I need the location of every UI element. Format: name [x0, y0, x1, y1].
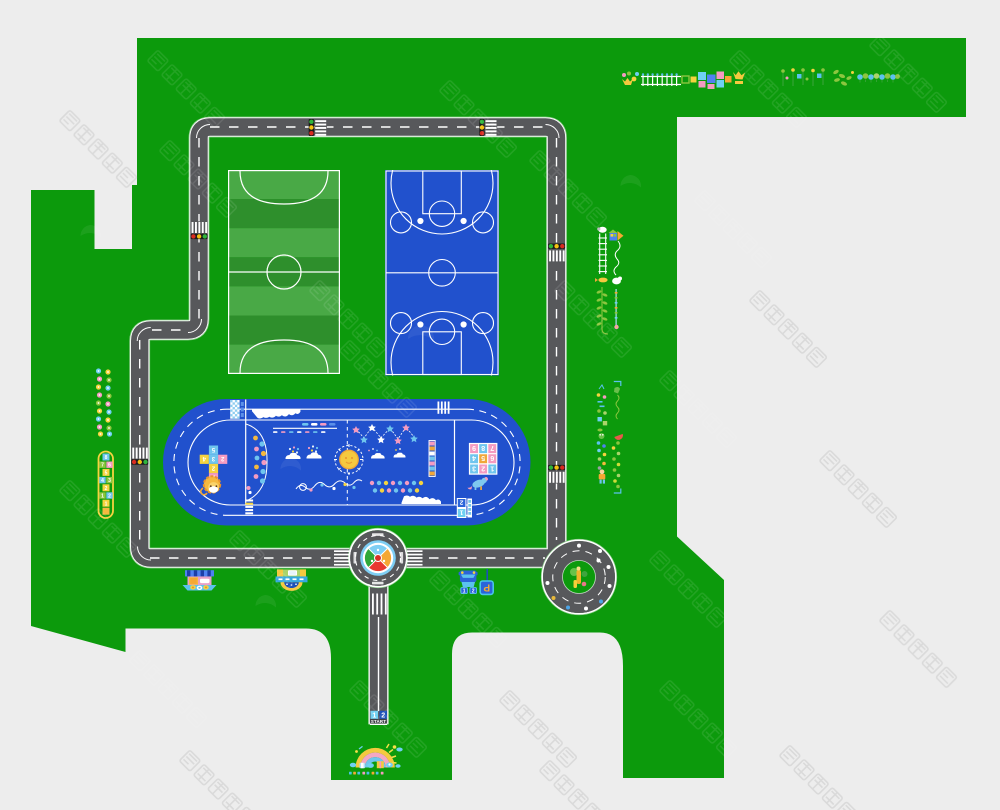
svg-text:7: 7 — [101, 463, 104, 469]
svg-text:1: 1 — [105, 502, 108, 508]
svg-text:4: 4 — [472, 454, 476, 461]
svg-text:7: 7 — [490, 444, 494, 451]
svg-text:1: 1 — [490, 464, 494, 471]
svg-text:3: 3 — [108, 478, 111, 484]
svg-text:9: 9 — [472, 444, 476, 451]
svg-text:8: 8 — [481, 444, 485, 451]
svg-text:2: 2 — [105, 486, 108, 492]
svg-text:4: 4 — [101, 478, 104, 484]
svg-text:2: 2 — [481, 464, 485, 471]
svg-text:2: 2 — [459, 498, 463, 505]
svg-text:1: 1 — [459, 508, 463, 515]
svg-text:2: 2 — [472, 589, 475, 595]
svg-text:6: 6 — [108, 463, 111, 469]
svg-text:1: 1 — [101, 494, 104, 500]
svg-text:6: 6 — [490, 454, 494, 461]
svg-text:8: 8 — [105, 455, 108, 461]
svg-text:2: 2 — [108, 494, 111, 500]
svg-text:5: 5 — [481, 454, 485, 461]
svg-text:5: 5 — [105, 471, 108, 477]
svg-text:3: 3 — [472, 464, 476, 471]
svg-text:P: P — [483, 581, 490, 592]
